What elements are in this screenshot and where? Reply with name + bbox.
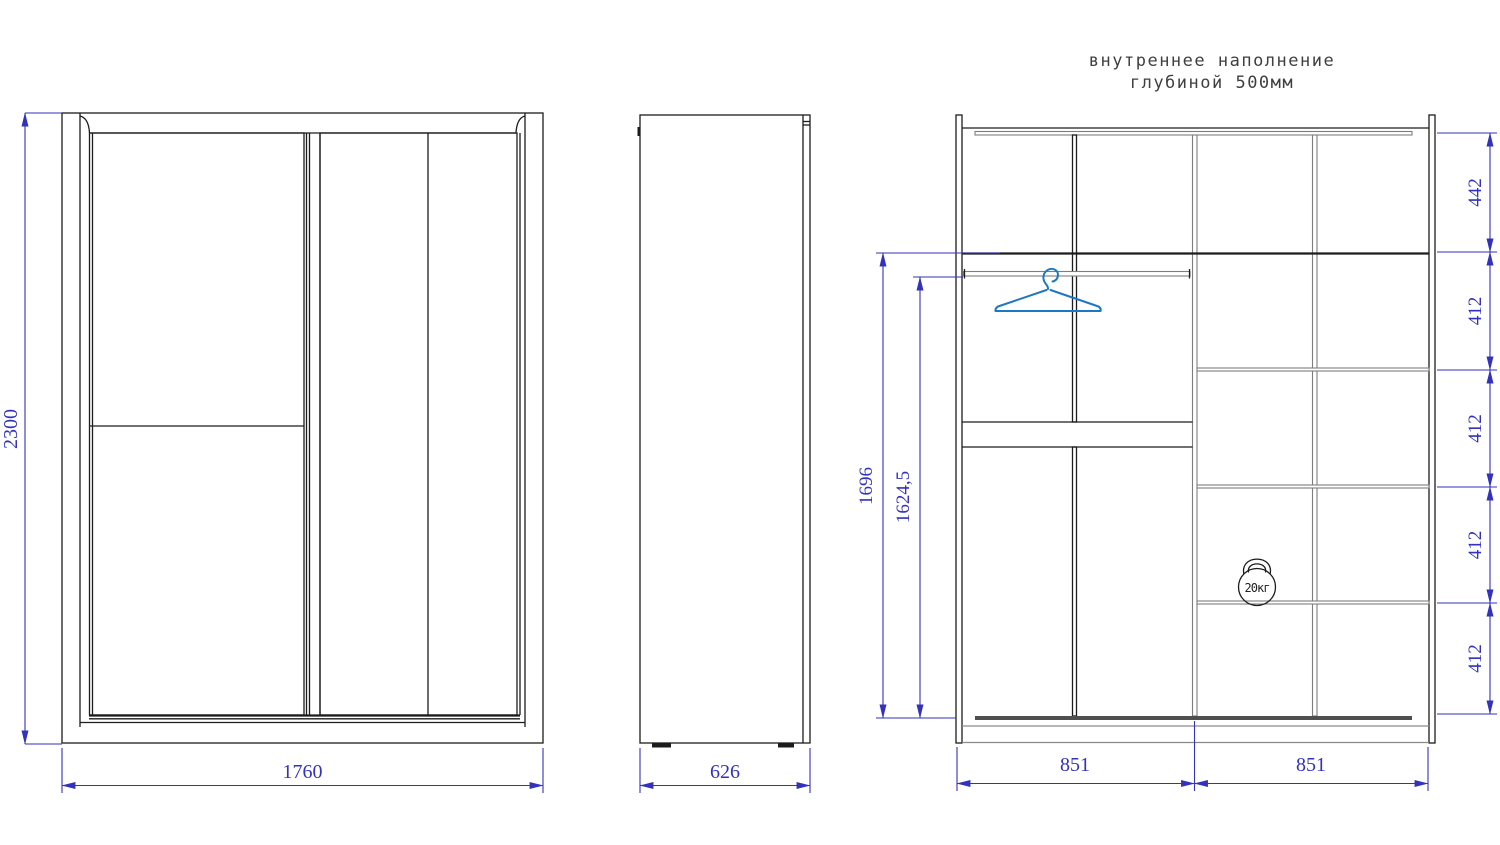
wardrobe-technical-drawing: внутреннее наполнение глубиной 500мм: [0, 0, 1500, 845]
internal-right-panel: [1429, 115, 1435, 743]
dim-label-412-1: 412: [1465, 297, 1486, 326]
side-view: [639, 115, 810, 748]
dim-label-1760: 1760: [283, 761, 323, 783]
side-foot-right: [778, 743, 794, 748]
dim-label-412-2: 412: [1465, 414, 1486, 443]
dimensions: 2300 1760 626 851 851 442 412 412: [0, 113, 1497, 793]
internal-right-shelf-2: [1197, 485, 1429, 488]
front-left-door: [90, 133, 305, 715]
internal-right-shelf-3: [1197, 601, 1429, 604]
front-right-door: [320, 133, 517, 715]
kettlebell-handle-outer: [1244, 559, 1271, 574]
internal-left-divider-lower: [1073, 447, 1077, 716]
dim-label-412-3: 412: [1465, 531, 1486, 560]
drawing-svg: внутреннее наполнение глубиной 500мм: [0, 0, 1500, 845]
internal-right-shelf-1: [1197, 368, 1429, 371]
dim-label-442: 442: [1465, 178, 1486, 207]
internal-view: [956, 115, 1435, 743]
hanger-body: [995, 290, 1100, 311]
side-foot-left: [652, 743, 671, 748]
dim-label-1624: 1624,5: [893, 471, 914, 523]
front-view: [62, 113, 543, 743]
internal-left-divider-upper: [1073, 135, 1077, 422]
dim-label-412-4: 412: [1465, 644, 1486, 673]
dim-label-851-left: 851: [1060, 754, 1090, 776]
dim-label-851-right: 851: [1296, 754, 1326, 776]
front-outline: [62, 113, 543, 743]
dim-label-2300: 2300: [0, 409, 22, 449]
internal-right-divider: [1313, 135, 1318, 716]
drawing-title-line1: внутреннее наполнение: [1089, 51, 1335, 71]
internal-left-panel: [956, 115, 962, 743]
dim-label-1696: 1696: [856, 467, 877, 505]
kettlebell-icon: 20кг: [1239, 559, 1276, 605]
front-top-right-curve: [516, 116, 525, 133]
front-top-left-curve: [80, 116, 90, 133]
internal-center-divider: [1193, 135, 1198, 716]
side-outline: [640, 115, 810, 743]
hanging-rod: [964, 272, 1191, 277]
drawing-title-line2: глубиной 500мм: [1130, 73, 1294, 93]
kettlebell-label: 20кг: [1245, 581, 1270, 595]
dim-label-626: 626: [710, 761, 740, 783]
